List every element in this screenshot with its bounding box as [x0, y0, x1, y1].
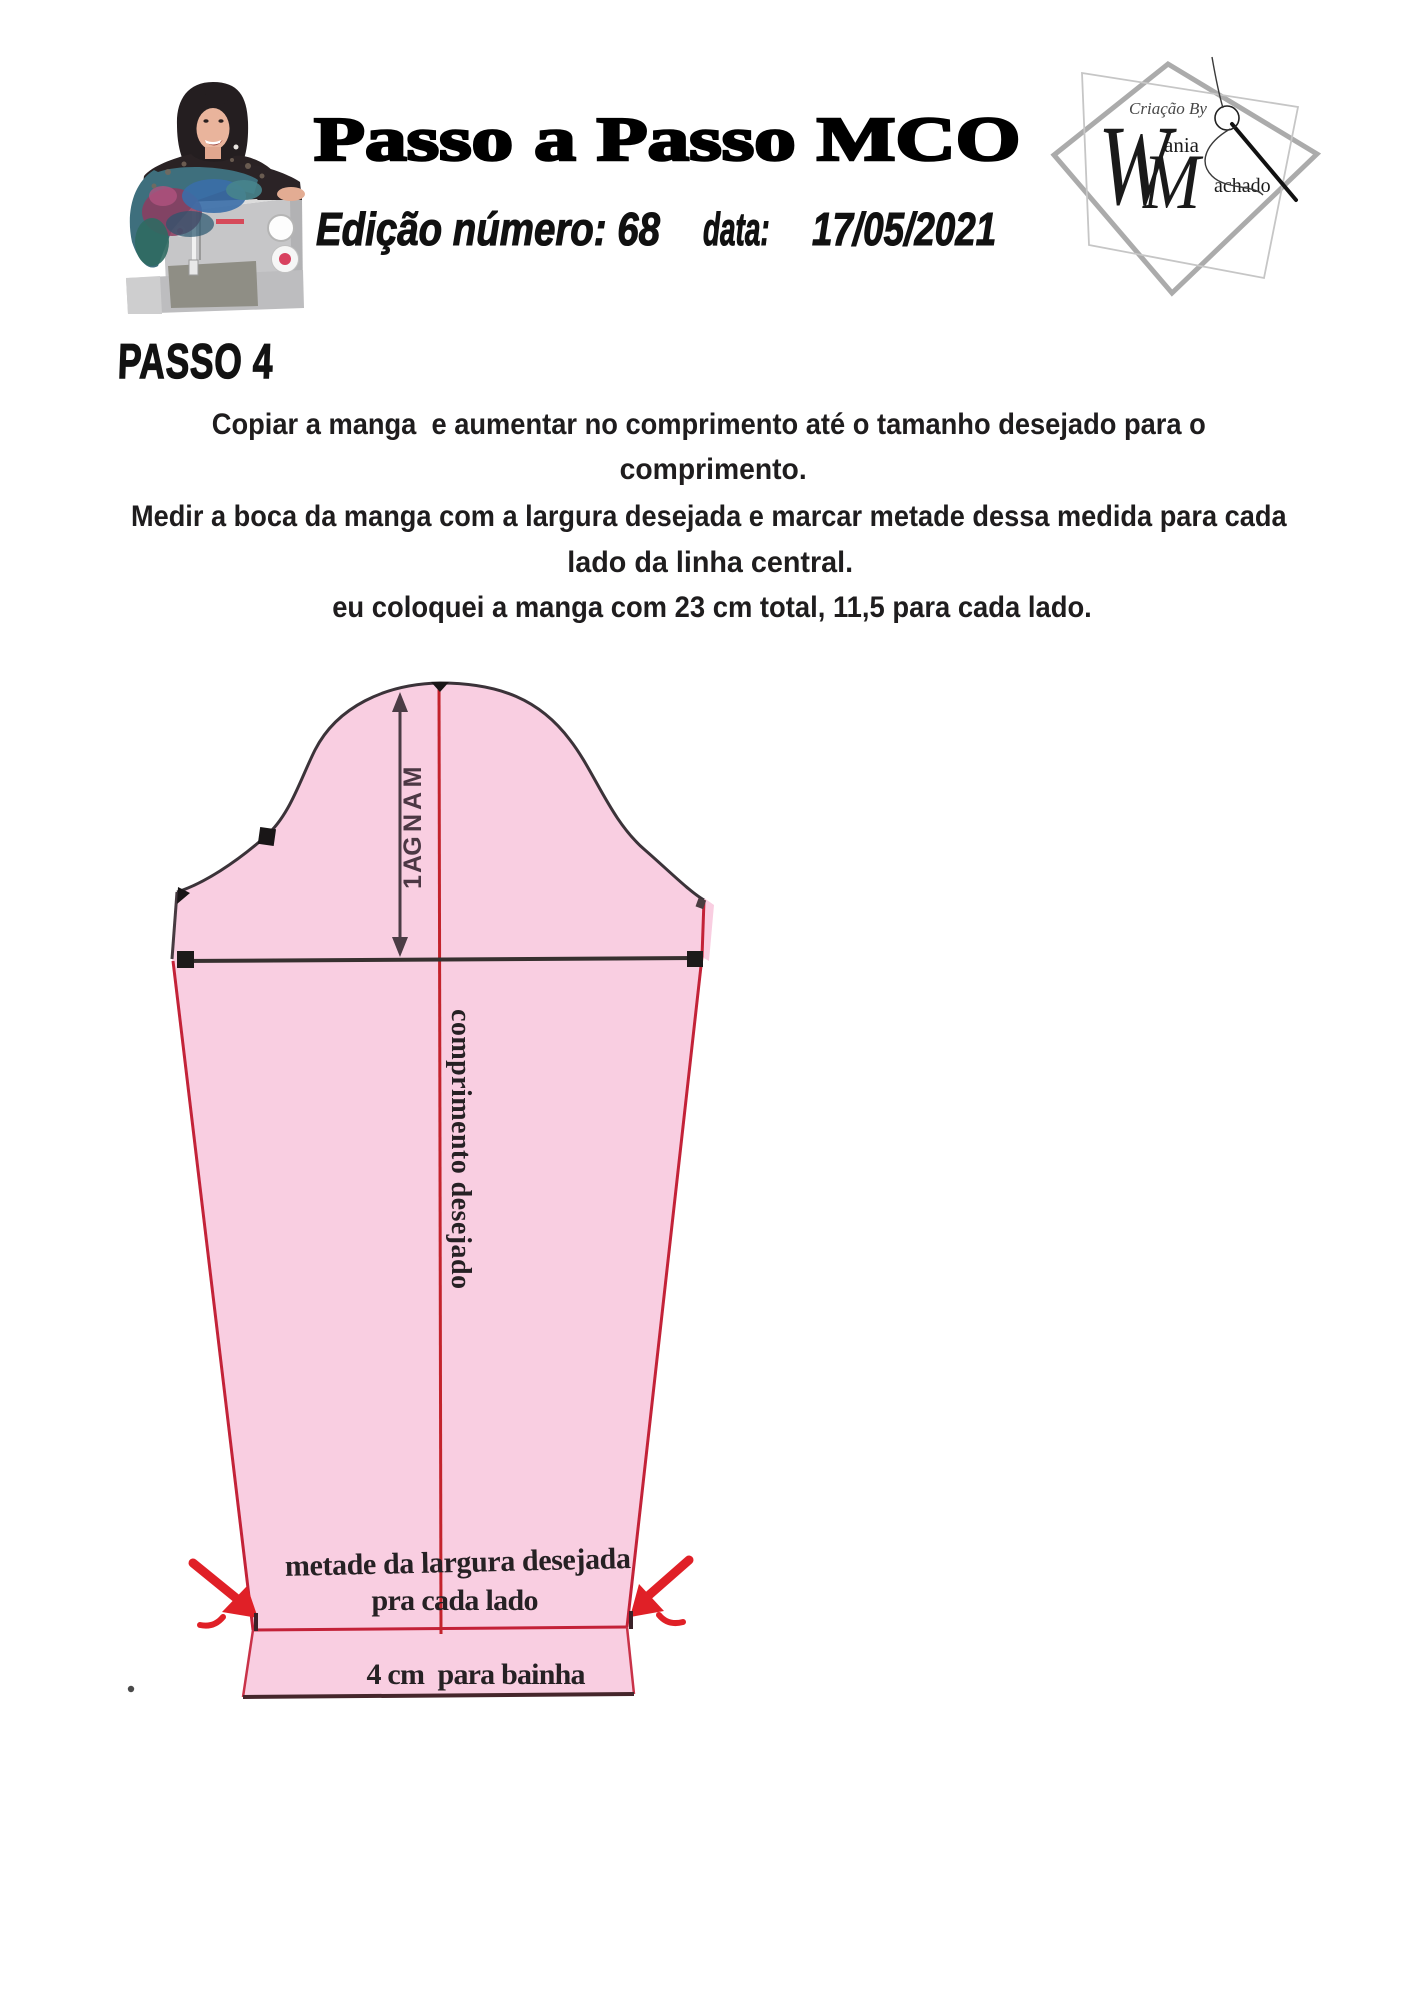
svg-text:4 cm para bainha: 4 cm para bainha — [367, 1658, 586, 1691]
svg-text:comprimento desejado: comprimento desejado — [445, 1009, 476, 1289]
svg-text:G: G — [399, 836, 427, 855]
svg-text:1: 1 — [399, 875, 427, 889]
svg-text:A: A — [399, 855, 427, 873]
svg-text:pra cada lado: pra cada lado — [372, 1584, 539, 1617]
svg-text:ania: ania — [1164, 133, 1200, 157]
svg-text:N: N — [399, 814, 427, 832]
svg-text:M: M — [399, 767, 427, 788]
svg-text:A: A — [399, 792, 427, 810]
